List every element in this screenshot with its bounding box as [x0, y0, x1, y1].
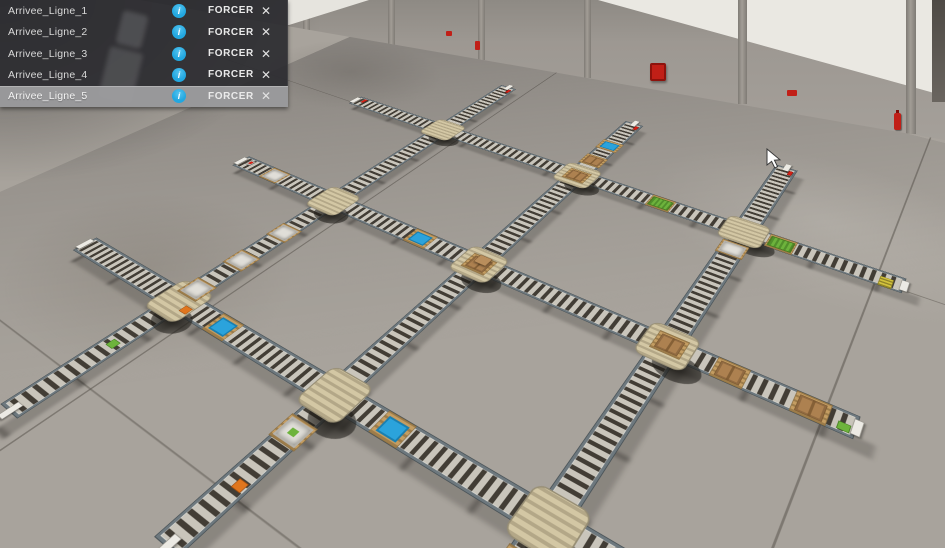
close-icon[interactable]: ✕ [261, 90, 271, 102]
close-icon[interactable]: ✕ [261, 48, 271, 60]
forcer-button[interactable]: FORCER [208, 91, 254, 102]
close-icon[interactable]: ✕ [261, 69, 271, 81]
line-label: Arrivee_Ligne_4 [8, 69, 87, 81]
info-icon[interactable]: i [172, 25, 186, 39]
info-icon[interactable]: i [172, 47, 186, 61]
green-part [286, 427, 299, 437]
panel-rows: Arrivee_Ligne_1 i FORCER ✕ Arrivee_Ligne… [0, 0, 288, 107]
forcer-button[interactable]: FORCER [208, 27, 254, 38]
panel-row-5[interactable]: Arrivee_Ligne_5 i FORCER ✕ [0, 86, 288, 107]
wall-pillar [906, 0, 916, 134]
info-icon[interactable]: i [172, 4, 186, 18]
line-label: Arrivee_Ligne_5 [8, 90, 87, 102]
wall-pillar [478, 0, 485, 60]
wall-corner-shadow [932, 0, 945, 102]
wall-pillar [388, 0, 395, 46]
forcer-button[interactable]: FORCER [208, 5, 254, 16]
close-icon[interactable]: ✕ [261, 5, 271, 17]
forcer-button[interactable]: FORCER [208, 69, 254, 80]
wall-pillar [584, 0, 591, 78]
info-icon[interactable]: i [172, 89, 186, 103]
info-icon[interactable]: i [172, 68, 186, 82]
wall-pillar [738, 0, 747, 104]
line-label: Arrivee_Ligne_3 [8, 48, 87, 60]
panel-row-4[interactable]: Arrivee_Ligne_4 i FORCER ✕ [0, 64, 288, 85]
conveyor-lines-panel: Arrivee_Ligne_1 i FORCER ✕ Arrivee_Ligne… [0, 0, 288, 107]
close-icon[interactable]: ✕ [261, 26, 271, 38]
fire-extinguisher [894, 113, 901, 130]
warehouse-scene: Arrivee_Ligne_1 i FORCER ✕ Arrivee_Ligne… [0, 0, 945, 548]
line-label: Arrivee_Ligne_2 [8, 26, 87, 38]
wall-alarm-small [787, 90, 797, 96]
forcer-button[interactable]: FORCER [208, 48, 254, 59]
wall-sign-red [446, 31, 452, 36]
line-label: Arrivee_Ligne_1 [8, 5, 87, 17]
panel-row-1[interactable]: Arrivee_Ligne_1 i FORCER ✕ [0, 0, 288, 21]
panel-row-3[interactable]: Arrivee_Ligne_3 i FORCER ✕ [0, 43, 288, 64]
fire-hose-sign [475, 41, 480, 50]
fire-alarm-box [650, 63, 666, 81]
panel-row-2[interactable]: Arrivee_Ligne_2 i FORCER ✕ [0, 21, 288, 42]
